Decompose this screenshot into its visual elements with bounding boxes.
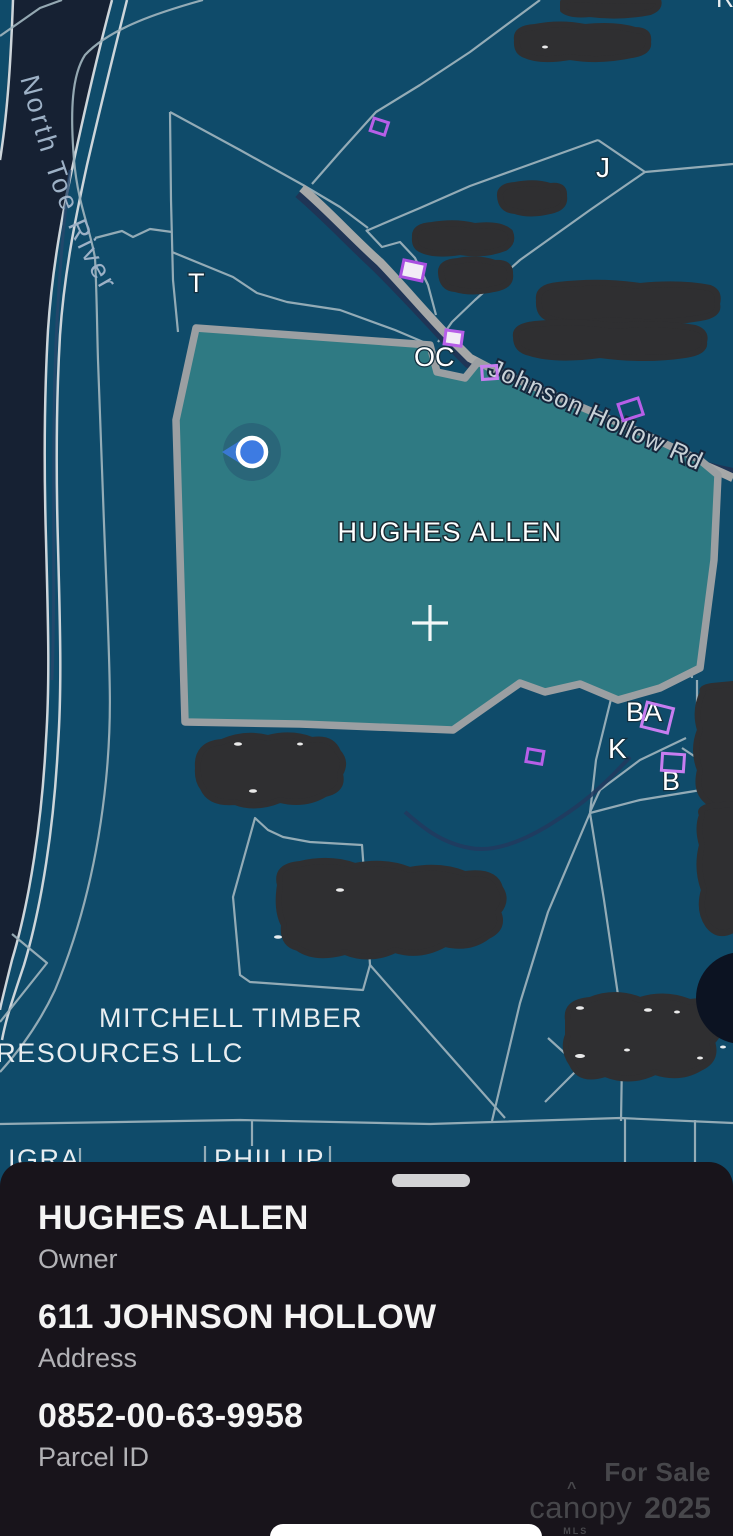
parcel-map-app-screen: North Toe River T J OC BA K B Johnson Ho… [0,0,733,1536]
parcel-label-j: J [596,152,610,183]
parcel-label-t: T [188,268,205,298]
bottom-search-pill[interactable] [270,1524,542,1536]
address-value: 611 JOHNSON HOLLOW [38,1297,713,1337]
canopy-roof-icon: ^ [567,1481,577,1497]
canopy-mls-sub: MLS [563,1526,588,1536]
building-marker-icon [444,330,463,346]
selected-parcel-label: HUGHES ALLEN [337,517,562,547]
parcel-label-k: K [608,733,627,764]
owner-label-mitchell-line2: RESOURCES LLC [0,1038,244,1068]
canopy-mls-logo: can^opyMLS [529,1490,632,1526]
sheet-drag-handle[interactable] [392,1174,470,1187]
year-watermark: 2025 [644,1492,711,1526]
partial-label-top-right: R [716,0,733,13]
owner-label-mitchell-line1: MITCHELL TIMBER [99,1003,363,1033]
owner-label: Owner [38,1244,713,1275]
parcel-id-value: 0852-00-63-9958 [38,1396,713,1436]
building-marker-icon [400,260,425,281]
parcel-label-oc: OC [414,342,455,372]
address-group: 611 JOHNSON HOLLOW Address [38,1297,713,1374]
parcel-info-bottom-sheet[interactable]: HUGHES ALLEN Owner 611 JOHNSON HOLLOW Ad… [0,1162,733,1536]
owner-group: HUGHES ALLEN Owner [38,1198,713,1275]
owner-value: HUGHES ALLEN [38,1198,713,1238]
parcel-map[interactable]: North Toe River T J OC BA K B Johnson Ho… [0,0,733,1175]
for-sale-watermark: For Sale [529,1457,711,1488]
watermark: For Sale can^opyMLS 2025 [529,1457,711,1526]
address-label: Address [38,1343,713,1374]
